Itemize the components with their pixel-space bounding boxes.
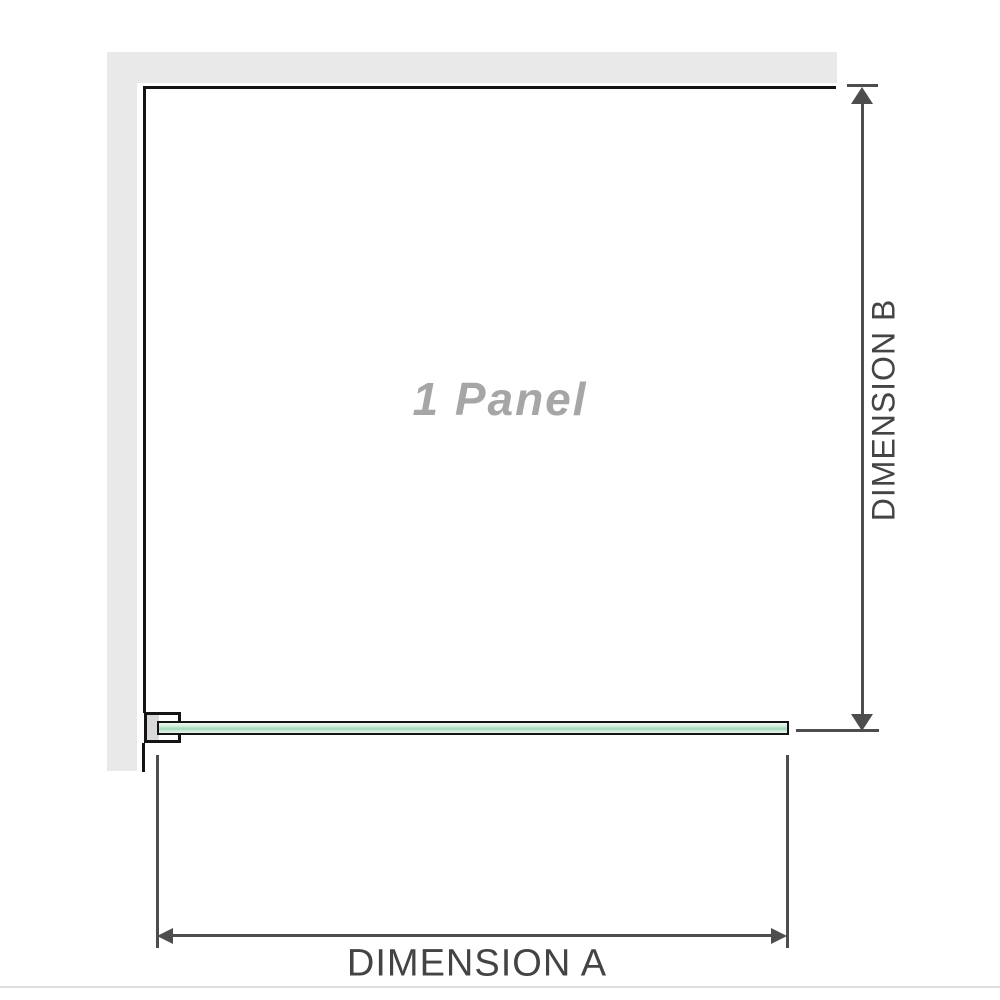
dimension-a-right-extension-line bbox=[786, 755, 789, 948]
panel-count-label: 1 Panel bbox=[412, 372, 587, 426]
dimension-b-line bbox=[861, 100, 864, 716]
arrow-right-icon bbox=[771, 928, 787, 944]
arrow-left-icon bbox=[157, 928, 173, 944]
dimension-a-left-extension-line bbox=[156, 755, 159, 948]
glass-panel bbox=[157, 721, 789, 735]
bottom-divider bbox=[0, 986, 1000, 988]
wall-edge-below-bracket bbox=[142, 743, 145, 772]
dimension-a-label: DIMENSION A bbox=[347, 943, 607, 986]
panel-outline-top-edge bbox=[144, 86, 836, 89]
dimension-a-line bbox=[172, 934, 772, 937]
shower-panel-diagram: DIMENSION B DIMENSION A 1 Panel bbox=[0, 0, 1000, 1000]
wall-left bbox=[107, 52, 137, 771]
wall-top bbox=[107, 52, 837, 83]
dimension-b-label: DIMENSION B bbox=[866, 299, 903, 522]
arrow-down-icon bbox=[851, 714, 873, 731]
arrow-up-icon bbox=[851, 87, 873, 104]
panel-outline-left-edge bbox=[143, 86, 146, 713]
